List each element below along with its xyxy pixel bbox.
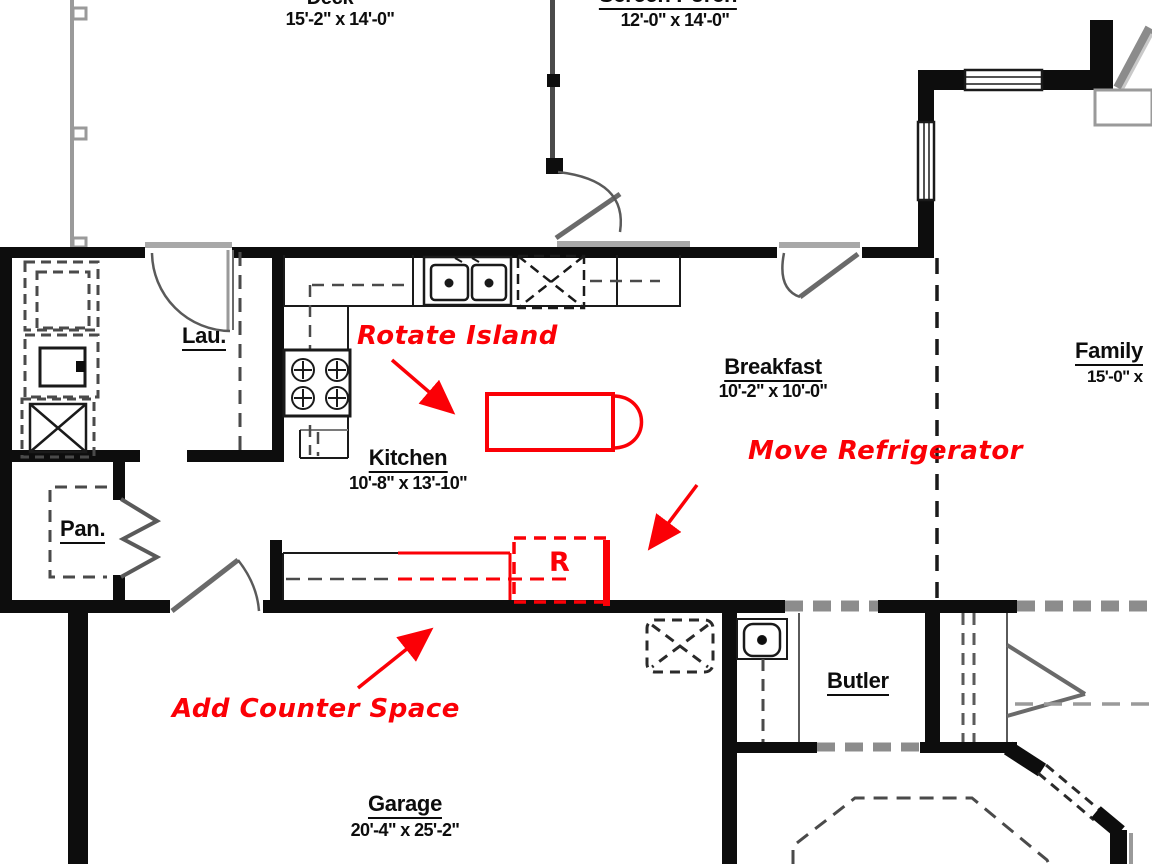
butler-label: Butler (827, 669, 889, 696)
family-label: Family (1075, 339, 1143, 366)
garage-label: Garage (368, 792, 442, 819)
laundry-door (152, 250, 233, 331)
kitchen-label: Kitchen (369, 446, 448, 473)
kitchen-sink (424, 257, 511, 305)
rotate-island-note: Rotate Island (357, 322, 558, 350)
add-counter-arrow (358, 632, 428, 688)
window-top (965, 70, 1042, 90)
closet-double-doors (963, 613, 1152, 742)
deck-dims: 15'-2" x 14'-0" (286, 10, 395, 29)
laundry-label: Lau. (182, 324, 226, 351)
breakfast-dims: 10'-2" x 10'-0" (719, 382, 828, 401)
pantry-bifold-doors (121, 499, 157, 577)
move-refrigerator-note: Move Refrigerator (748, 437, 1023, 465)
porch-divider-wall (546, 0, 563, 174)
floor-plan: Deck 15'-2" x 14'-0" Screen Porch 12'-0"… (0, 0, 1152, 864)
annotation-added-counter (398, 553, 572, 600)
floor-plan-linework (0, 0, 1152, 864)
screen-porch-dims: 12'-0" x 14'-0" (621, 11, 730, 30)
corner-walls-angled (1008, 748, 1133, 864)
annotation-island (487, 394, 642, 450)
kitchen-range (284, 350, 350, 416)
breakfast-door (782, 253, 858, 297)
porch-door (556, 172, 621, 238)
refrigerator-marker: R (549, 548, 570, 577)
wall-openings-headers (145, 241, 860, 248)
breakfast-label: Breakfast (724, 355, 822, 382)
annotation-arrows (358, 360, 697, 688)
garage-dims: 20'-4" x 25'-2" (351, 821, 460, 840)
kitchen-dims: 10'-8" x 13'-10" (349, 474, 467, 493)
window-right (918, 122, 934, 200)
laundry-sink-xbox (30, 404, 86, 452)
screen-porch-label: Screen Porch (599, 0, 737, 10)
deck-rail (70, 0, 86, 248)
pantry-label: Pan. (60, 517, 105, 544)
dishwasher-xbox (518, 256, 584, 308)
family-dims: 15'-0" x (1087, 368, 1143, 386)
laundry-appliances (22, 262, 98, 457)
butler-sink (737, 619, 787, 659)
garage-entry-door (172, 560, 259, 611)
rotate-island-arrow (392, 360, 450, 410)
add-counter-space-note: Add Counter Space (172, 695, 460, 723)
existing-counter (283, 553, 398, 600)
garage-bay-dashed (793, 798, 1049, 864)
butler-xbox (647, 620, 713, 672)
move-refrigerator-arrow (652, 485, 697, 545)
